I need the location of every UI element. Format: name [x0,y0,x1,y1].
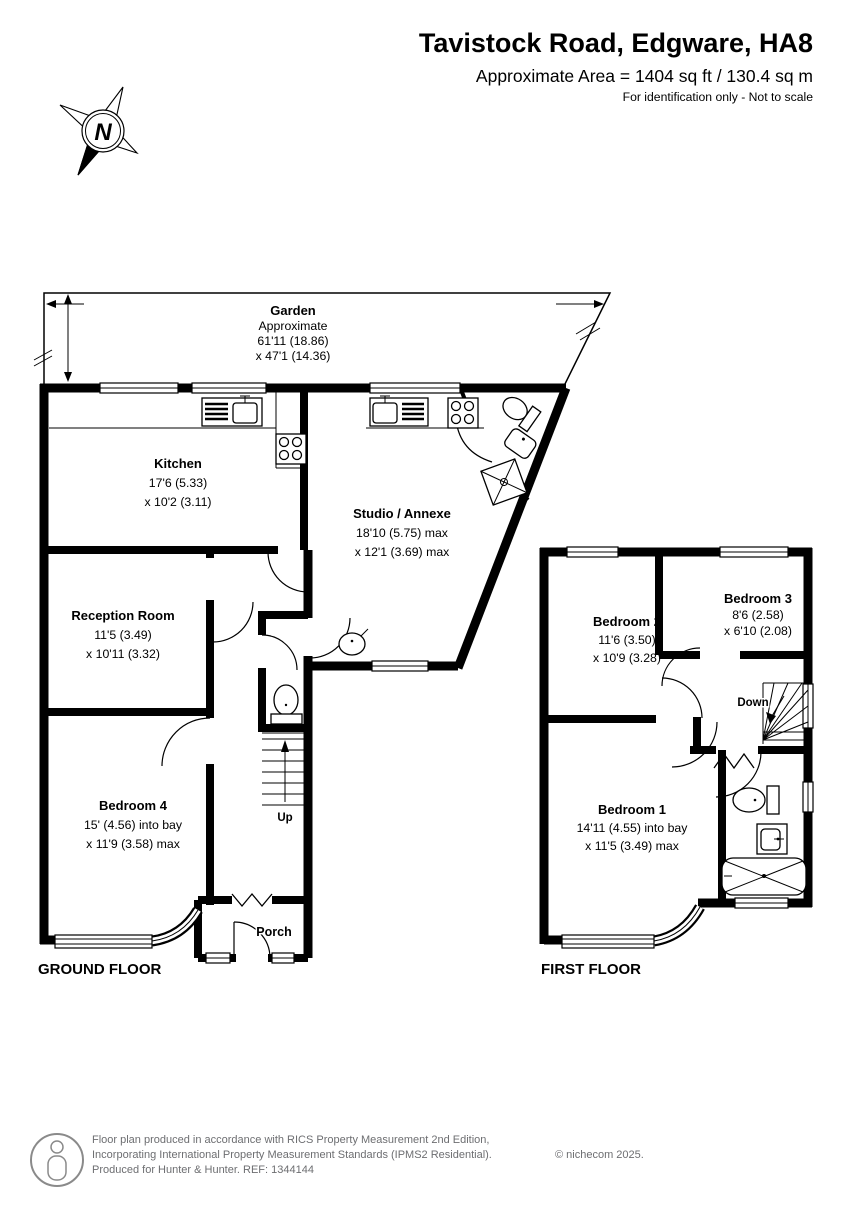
bedroom3-name: Bedroom 3 [724,591,792,606]
door-arc-reception [213,602,253,642]
room-label-bedroom3: Bedroom 3 8'6 (2.58) x 6'10 (2.08) [724,591,792,638]
bedroom2-name: Bedroom 2 [593,614,661,629]
compass-rose-icon: N [60,87,137,175]
studio-dim1: 18'10 (5.75) max [356,526,449,540]
bedroom4-dim2: x 11'9 (3.58) max [86,837,181,851]
footer-line2: Incorporating International Property Mea… [92,1149,492,1161]
stairs-up: Up [262,733,308,824]
studio-sink-icon [370,396,428,426]
garden-dim1: 61'11 (18.86) [257,334,328,348]
bathroom-toilet-icon [733,786,779,814]
doors-first-floor [662,648,761,797]
bedroom1-dim1: 14'11 (4.55) into bay [577,821,689,835]
room-label-garden: Garden Approximate 61'11 (18.86) x 47'1 … [256,303,331,363]
reception-name: Reception Room [71,608,174,623]
bedroom4-name: Bedroom 4 [99,798,168,813]
disclaimer-text: For identification only - Not to scale [623,90,814,104]
door-arc-bedroom2 [662,678,702,718]
first-floor-label: FIRST FLOOR [541,961,641,978]
stairs-up-arrow [281,740,289,752]
shower-room-basin-icon [503,427,538,460]
kitchen-sink-icon [202,396,262,426]
stairs-up-label: Up [277,812,292,824]
corner-basin-icon [339,629,368,655]
cloakroom-toilet-icon [271,685,302,724]
header: Tavistock Road, Edgware, HA8 Approximate… [419,28,813,104]
footer-line1: Floor plan produced in accordance with R… [92,1134,489,1146]
nichecom-person-icon [31,1134,83,1186]
kitchen-dim2: x 10'2 (3.11) [144,495,211,509]
bathroom-fixtures [722,786,806,895]
floorplan-page: Tavistock Road, Edgware, HA8 Approximate… [0,0,849,1200]
break-mark [34,350,52,366]
bedroom1-dim2: x 11'5 (3.49) max [585,839,680,853]
bathroom-sink-icon [757,824,787,854]
footer-copyright: © nichecom 2025. [555,1149,644,1161]
bedroom3-dim2: x 6'10 (2.08) [724,624,792,638]
door-arc-cloakroom [262,635,297,670]
kitchen-dim1: 17'6 (5.33) [149,476,207,490]
bedroom3-dim1: 8'6 (2.58) [732,608,784,622]
studio-dim2: x 12'1 (3.69) max [355,545,450,559]
bedroom2-dim1: 11'6 (3.50) [598,633,656,647]
page-title: Tavistock Road, Edgware, HA8 [419,28,813,58]
room-label-kitchen: Kitchen 17'6 (5.33) x 10'2 (3.11) [144,456,211,509]
bedroom2-dim2: x 10'9 (3.28) [593,651,661,665]
footer: Floor plan produced in accordance with R… [31,1134,644,1186]
floorplan-canvas: Tavistock Road, Edgware, HA8 Approximate… [0,0,849,1200]
studio-hob-icon [448,398,478,428]
porch-label: Porch [256,925,291,939]
bath-icon [722,858,806,895]
garden-dim2: x 47'1 (14.36) [256,349,331,363]
bay-window [562,935,654,948]
kitchen-name: Kitchen [154,456,202,471]
door-threshold-marks [232,894,272,906]
ground-floor-plan: Garden Approximate 61'11 (18.86) x 47'1 … [34,293,610,978]
door-arc-bedroom4 [162,718,210,766]
door-arc-kitchen [268,552,308,592]
bay-window [55,935,152,948]
bedroom4-dim1: 15' (4.56) into bay [84,818,183,832]
room-label-bedroom4: Bedroom 4 15' (4.56) into bay x 11'9 (3.… [84,798,183,851]
studio-name: Studio / Annexe [353,506,451,521]
room-label-bedroom2: Bedroom 2 11'6 (3.50) x 10'9 (3.28) [593,614,661,665]
garden-name: Garden [270,303,316,318]
stairs-down: Down [737,683,808,744]
approximate-area: Approximate Area = 1404 sq ft / 130.4 sq… [476,66,813,86]
reception-dim1: 11'5 (3.49) [94,628,152,642]
room-label-reception: Reception Room 11'5 (3.49) x 10'11 (3.32… [71,608,174,661]
first-floor-plan: Down Bedroom 2 [540,547,813,978]
ground-floor-label: GROUND FLOOR [38,961,161,978]
stairs-down-label: Down [737,697,768,709]
footer-line3: Produced for Hunter & Hunter. REF: 13441… [92,1164,314,1176]
compass-north-label: N [94,119,112,146]
reception-dim2: x 10'11 (3.32) [86,647,160,661]
room-label-bedroom1: Bedroom 1 14'11 (4.55) into bay x 11'5 (… [577,802,689,853]
garden-approx: Approximate [258,319,327,333]
room-label-studio: Studio / Annexe 18'10 (5.75) max x 12'1 … [353,506,451,559]
kitchen-hob-icon [276,434,306,464]
shower-room-toilet-icon [498,391,541,431]
bedroom1-name: Bedroom 1 [598,802,666,817]
windows-ground-floor [55,383,460,963]
